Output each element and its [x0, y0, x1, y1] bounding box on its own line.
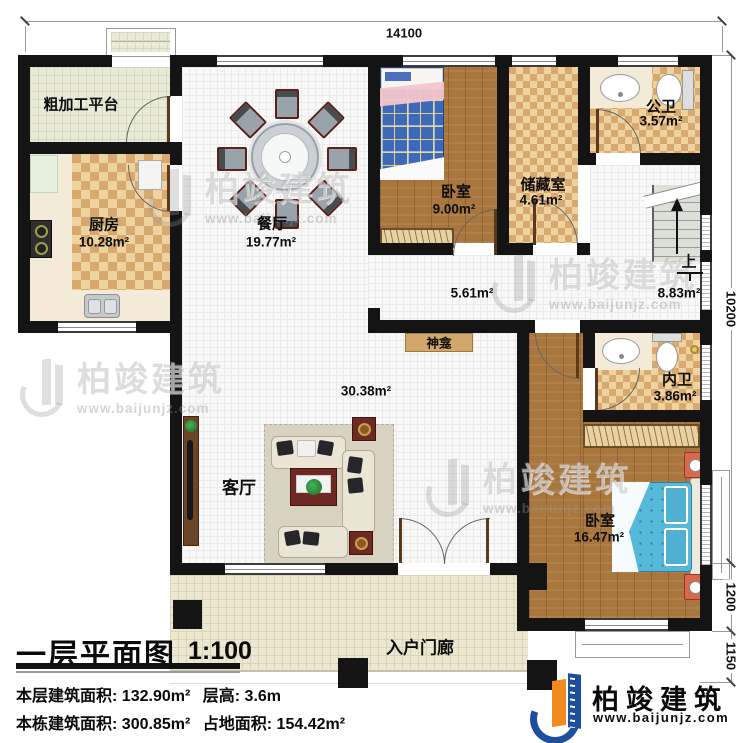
floor-area-value: 132.90m² — [122, 688, 191, 705]
sofa-cushion — [347, 477, 363, 493]
wall-segment — [368, 320, 535, 333]
room-label-inner-bath: 内卫 — [662, 369, 692, 390]
floor-area-label: 本层建筑面积: — [16, 688, 117, 705]
tv — [187, 440, 193, 520]
bay-window-line — [582, 644, 683, 645]
footprint-label: 占地面积: — [203, 716, 272, 733]
dimension-right-lower: 1200 — [724, 580, 739, 615]
door-leaf — [167, 165, 170, 211]
window — [700, 485, 712, 565]
extension-line — [25, 26, 26, 52]
window — [700, 215, 712, 250]
door-leaf — [595, 368, 598, 410]
room-label-master-bedroom: 卧室 — [585, 510, 615, 531]
door-leaf — [399, 518, 402, 563]
room-area-inner-bath: 3.86m² — [654, 389, 697, 404]
brand-website: www.baijunjz.com — [593, 710, 729, 725]
dimension-top-value: 14100 — [383, 26, 425, 41]
window — [700, 262, 712, 310]
wash-basin — [602, 338, 640, 364]
dining-table-center — [279, 151, 291, 163]
wall-segment — [583, 333, 595, 368]
wall-segment — [170, 142, 182, 165]
room-area-kitchen: 10.28m² — [79, 235, 129, 250]
room-label-porch: 入户门廊 — [386, 634, 454, 659]
floor-plan-canvas: 柏竣建筑www.baijunjz.com 柏竣建筑www.baijunjz.co… — [0, 0, 750, 743]
plant — [185, 420, 197, 432]
sofa-cushion — [317, 440, 334, 456]
room-area-master-bedroom: 16.47m² — [574, 530, 624, 545]
bed-pillow — [664, 528, 688, 566]
sofa-cushion — [297, 440, 316, 457]
total-area-label: 本栋建筑面积: — [16, 716, 117, 733]
dimension-line-top — [25, 21, 722, 22]
wall-segment — [325, 563, 398, 575]
toilet-tank — [652, 333, 682, 342]
stair-mark-tick — [689, 274, 691, 281]
wall-segment — [517, 333, 529, 631]
door-leaf — [167, 96, 170, 142]
total-area-value: 300.85m² — [122, 716, 191, 733]
room-area-public-bath: 3.57m² — [640, 114, 683, 129]
wall-segment — [170, 563, 225, 575]
dining-chair — [327, 147, 357, 171]
wall-segment — [640, 153, 712, 165]
bay-window-bottom — [575, 631, 690, 658]
room-label-rough-platform: 粗加工平台 — [43, 94, 118, 115]
window — [217, 55, 323, 67]
wall-segment — [580, 320, 712, 333]
bay-window-line — [721, 477, 722, 573]
sofa-cushion — [284, 530, 301, 546]
wall-segment — [18, 321, 58, 333]
entry-step-tile — [111, 32, 170, 52]
floor-height-value: 3.6m — [245, 688, 281, 705]
door-leaf — [596, 109, 599, 153]
entry-step-line — [111, 41, 170, 42]
room-area-dining: 19.77m² — [246, 235, 296, 250]
room-label-kitchen: 厨房 — [89, 214, 119, 235]
bed-pillow — [664, 486, 688, 524]
floor-height-label: 层高: — [203, 688, 240, 705]
watermark-logo-icon — [20, 355, 70, 413]
wardrobe-master — [583, 424, 700, 448]
stair-arrow-shaft — [676, 210, 678, 254]
room-area-storage: 4.61m² — [520, 193, 563, 208]
sofa-cushion — [302, 531, 319, 546]
wall-segment — [700, 250, 712, 262]
stair-up-arrow — [671, 198, 683, 211]
wash-basin — [600, 74, 640, 102]
shower-head — [690, 345, 699, 354]
wall-segment — [700, 55, 712, 215]
extension-line — [722, 26, 723, 52]
toilet — [656, 342, 678, 372]
wall-segment — [18, 67, 30, 333]
window — [585, 618, 668, 631]
room-area-bedroom-top: 9.00m² — [433, 202, 476, 217]
sofa-cushion — [276, 440, 294, 456]
wall-segment — [577, 243, 590, 255]
wall-segment — [368, 243, 453, 255]
plant — [306, 479, 322, 495]
room-label-storage: 储藏室 — [520, 174, 565, 195]
room-label-bedroom-top: 卧室 — [441, 181, 471, 202]
room-label-dining: 餐厅 — [257, 213, 287, 234]
wall-segment — [323, 55, 403, 67]
window — [403, 55, 495, 67]
porch-pillar — [338, 658, 368, 688]
door-leaf — [576, 333, 579, 378]
title-underline — [16, 663, 240, 669]
window — [225, 563, 325, 575]
stove — [30, 220, 52, 258]
bed-pillow — [385, 72, 411, 81]
wall-segment — [490, 563, 517, 575]
dimension-right-total: 10200 — [724, 288, 739, 330]
dimension-right-bottom: 1150 — [724, 639, 739, 673]
entry-step — [106, 28, 176, 57]
room-label-living: 客厅 — [222, 474, 256, 499]
wall-segment — [583, 410, 712, 422]
wall-segment — [578, 55, 590, 165]
dining-chair — [275, 89, 299, 119]
dining-chair — [217, 147, 247, 171]
title-block-line2: 本栋建筑面积: 300.85m² 占地面积: 154.42m² — [16, 710, 345, 734]
sofa-cushion — [347, 456, 363, 474]
window — [618, 55, 678, 67]
wall-segment — [578, 153, 596, 165]
title-block-line1: 本层建筑面积: 132.90m² 层高: 3.6m — [16, 682, 281, 706]
wall-segment — [170, 211, 182, 333]
brand-logo-icon — [530, 672, 584, 738]
wall-segment — [30, 142, 182, 154]
wall-segment — [18, 55, 112, 67]
stairs-up-label: 上 — [681, 251, 696, 272]
wall-segment — [700, 565, 712, 631]
shrine-label: 神龛 — [426, 333, 451, 352]
kitchen-board — [30, 155, 58, 193]
room-area-stair-hall: 8.83m² — [658, 286, 701, 301]
window — [58, 321, 136, 333]
side-table — [349, 531, 373, 555]
footprint-value: 154.42m² — [277, 716, 346, 733]
room-area-living: 30.38m² — [341, 384, 391, 399]
wall-segment — [497, 243, 533, 255]
room-area-hallway: 5.61m² — [451, 286, 494, 301]
window — [512, 55, 556, 67]
wall-segment — [170, 55, 182, 96]
plan-scale: 1:100 — [188, 637, 252, 666]
toilet-tank — [682, 70, 694, 110]
title-underline-thin — [16, 671, 240, 673]
window — [700, 345, 712, 400]
wall-segment — [170, 333, 182, 575]
wall-segment — [368, 55, 380, 255]
kitchen-sink — [84, 294, 120, 318]
door-leaf — [486, 518, 489, 563]
wall-segment — [497, 55, 509, 255]
side-table — [352, 417, 376, 441]
porch-pillar — [173, 600, 202, 629]
